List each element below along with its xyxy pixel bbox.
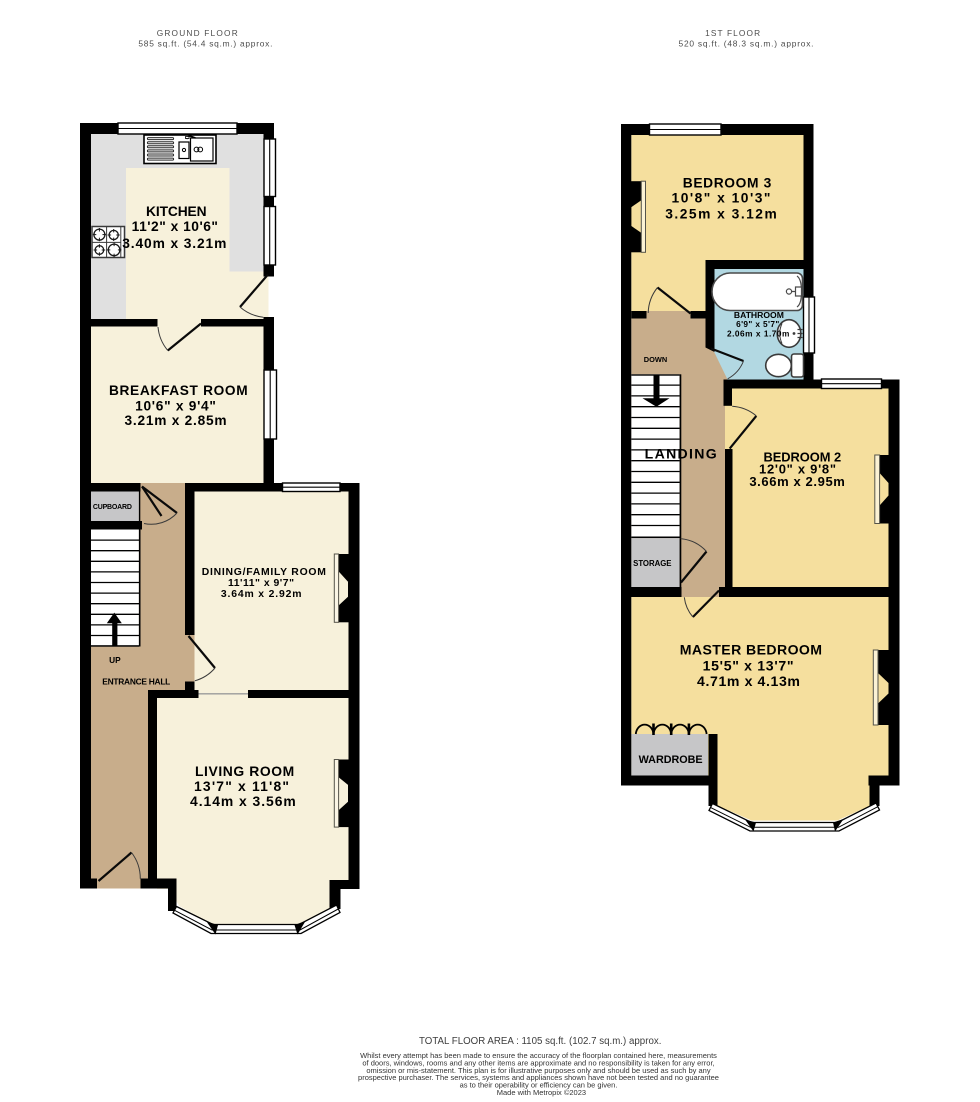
svg-text:GROUND FLOOR: GROUND FLOOR: [157, 28, 238, 38]
svg-text:585 sq.ft. (54.4 sq.m.) approx: 585 sq.ft. (54.4 sq.m.) approx.: [138, 39, 272, 49]
svg-text:15'5" x 13'7": 15'5" x 13'7": [703, 657, 794, 673]
svg-text:11'2" x 10'6": 11'2" x 10'6": [132, 219, 218, 234]
svg-text:TOTAL FLOOR AREA : 1105 sq.ft.: TOTAL FLOOR AREA : 1105 sq.ft. (102.7 sq…: [419, 1036, 661, 1047]
svg-text:STORAGE: STORAGE: [633, 559, 671, 568]
svg-text:1ST FLOOR: 1ST FLOOR: [705, 28, 760, 38]
svg-text:4.14m x 3.56m: 4.14m x 3.56m: [190, 793, 296, 809]
svg-text:2.06m x 1.70m: 2.06m x 1.70m: [727, 328, 790, 338]
svg-text:DOWN: DOWN: [644, 355, 668, 364]
svg-text:Made with Metropix ©2023: Made with Metropix ©2023: [497, 1088, 586, 1097]
svg-text:LIVING ROOM: LIVING ROOM: [195, 763, 294, 779]
svg-text:BEDROOM 3: BEDROOM 3: [683, 176, 772, 191]
svg-text:UP: UP: [109, 655, 121, 665]
svg-text:BREAKFAST ROOM: BREAKFAST ROOM: [109, 383, 248, 398]
svg-text:3.66m x 2.95m: 3.66m x 2.95m: [749, 474, 845, 489]
svg-text:KITCHEN: KITCHEN: [146, 204, 207, 219]
svg-text:ENTRANCE HALL: ENTRANCE HALL: [102, 677, 170, 687]
svg-text:4.71m x 4.13m: 4.71m x 4.13m: [697, 673, 800, 689]
svg-text:DINING/FAMILY ROOM: DINING/FAMILY ROOM: [202, 567, 326, 578]
svg-text:LANDING: LANDING: [645, 446, 717, 462]
svg-text:WARDROBE: WARDROBE: [639, 754, 703, 766]
svg-text:13'7" x 11'8": 13'7" x 11'8": [194, 778, 289, 794]
svg-text:3.40m x 3.21m: 3.40m x 3.21m: [122, 236, 226, 251]
svg-text:520 sq.ft. (48.3 sq.m.) approx: 520 sq.ft. (48.3 sq.m.) approx.: [679, 39, 814, 49]
svg-text:3.21m x 2.85m: 3.21m x 2.85m: [125, 413, 227, 428]
svg-text:MASTER BEDROOM: MASTER BEDROOM: [680, 642, 822, 658]
svg-text:11'11" x 9'7": 11'11" x 9'7": [228, 578, 294, 589]
svg-text:3.25m x 3.12m: 3.25m x 3.12m: [665, 206, 777, 221]
svg-text:CUPBOARD: CUPBOARD: [93, 504, 132, 511]
svg-text:3.64m x 2.92m: 3.64m x 2.92m: [221, 589, 302, 600]
svg-text:10'8" x 10'3": 10'8" x 10'3": [672, 191, 771, 206]
svg-text:10'6" x 9'4": 10'6" x 9'4": [135, 398, 216, 413]
